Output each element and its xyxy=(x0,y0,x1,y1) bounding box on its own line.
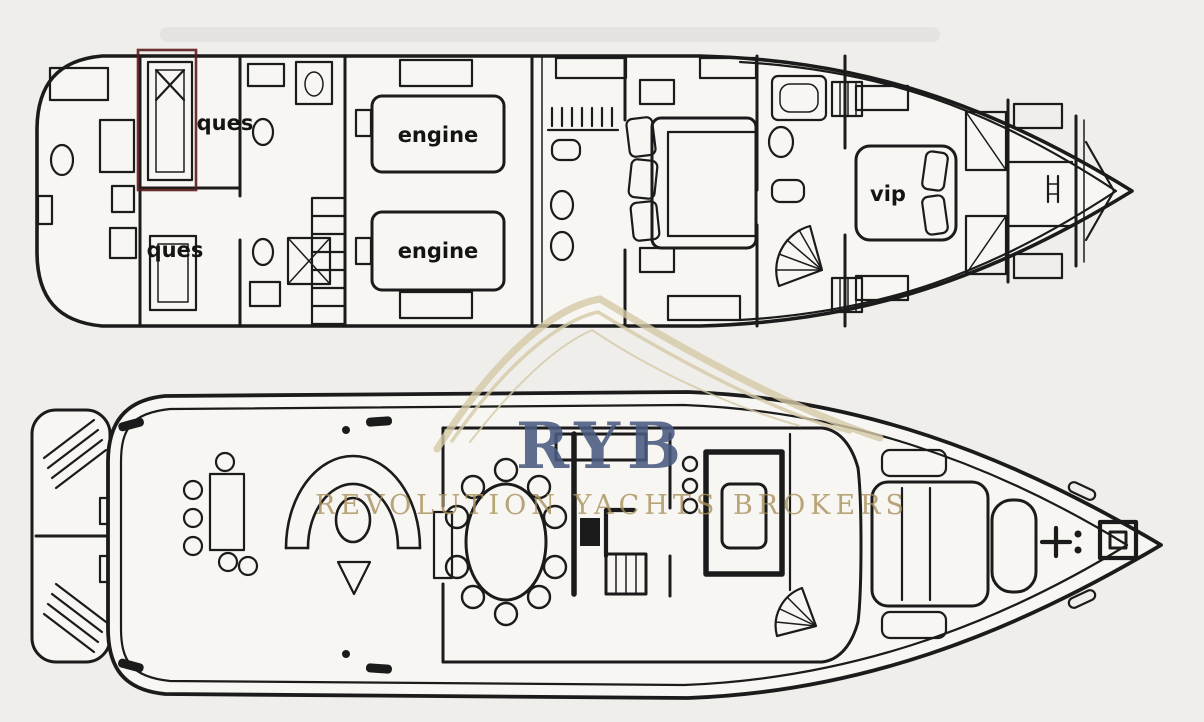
yacht-deck-plan-sheet: ques ques xyxy=(0,0,1204,722)
guest-cabin-starboard-label: ques xyxy=(147,238,204,262)
guest-cabin-port-label: ques xyxy=(197,111,254,135)
watermark-brand-name: REVOLUTION YACHTS BROKERS xyxy=(315,490,909,521)
engine-port-label: engine xyxy=(398,123,479,147)
scan-smudge xyxy=(160,27,940,42)
vip-cabin-label: vip xyxy=(870,182,906,206)
deck-plan-drawing: ques ques xyxy=(0,0,1204,722)
watermark-monogram: RYB xyxy=(516,409,688,484)
engine-starboard-label: engine xyxy=(398,239,479,263)
